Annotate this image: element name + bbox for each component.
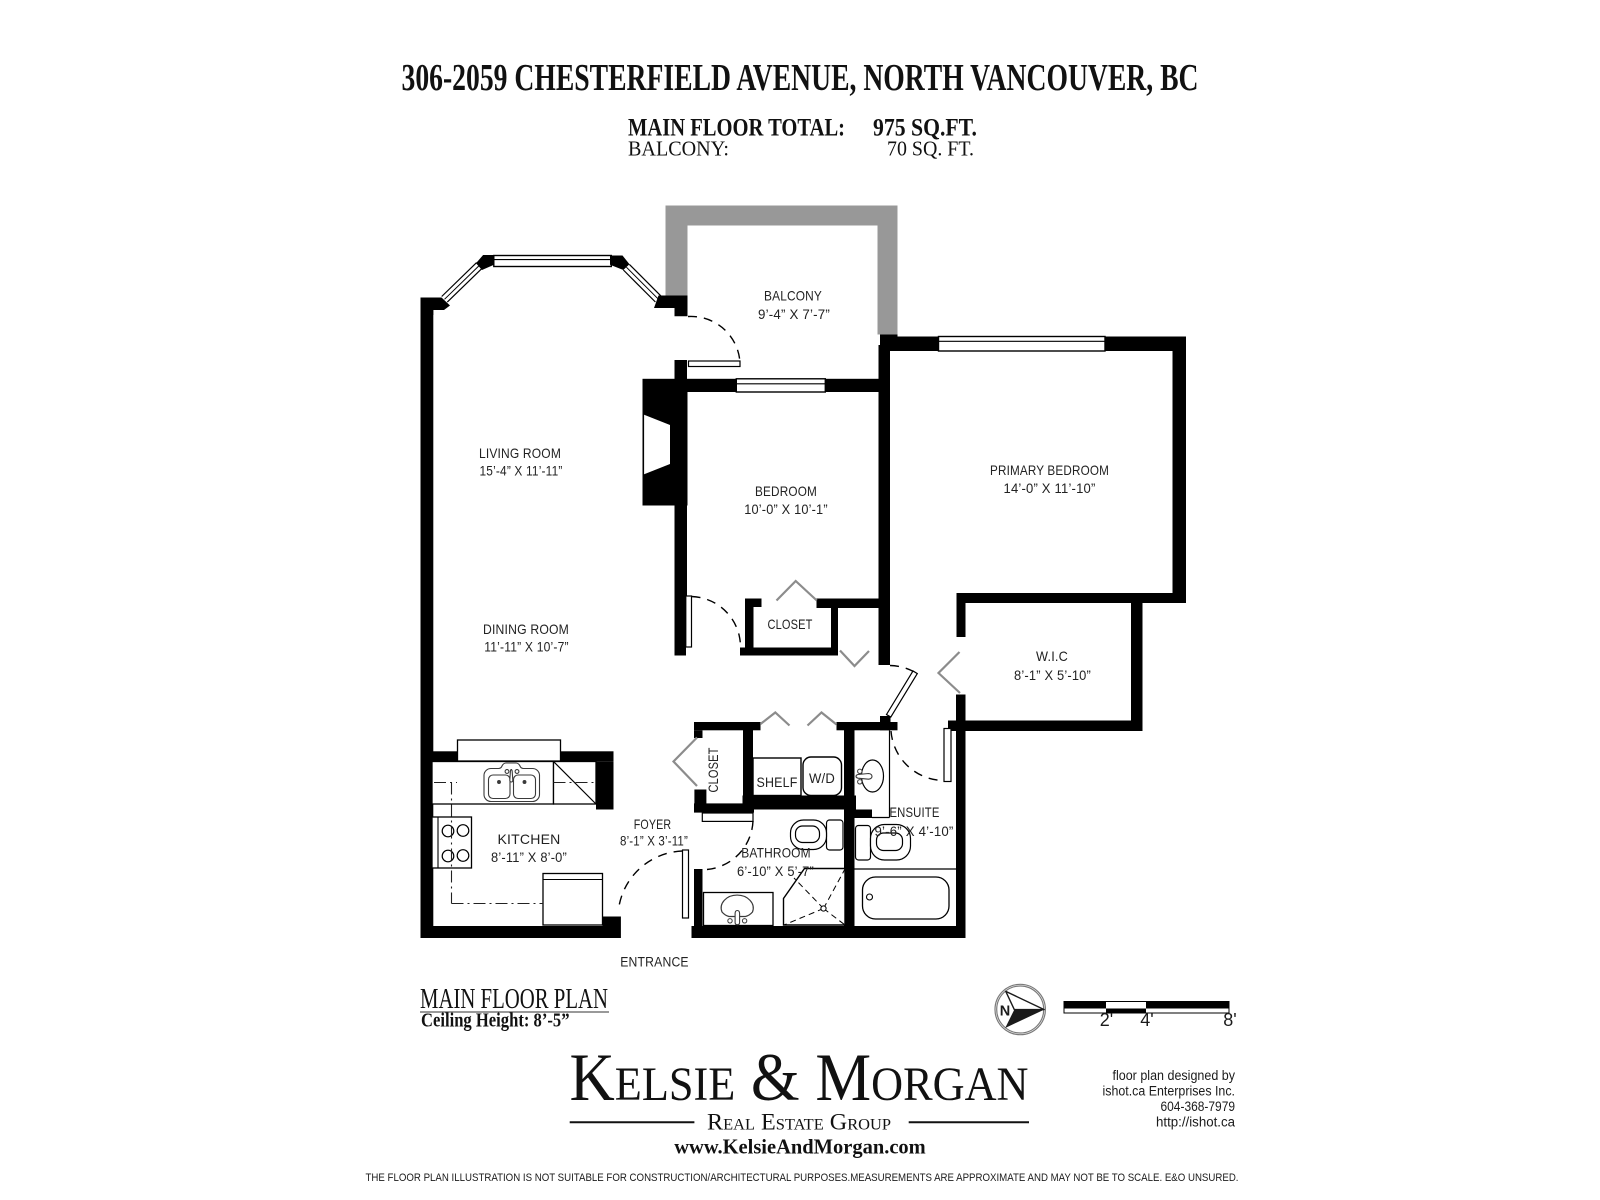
svg-text:floor plan designed by: floor plan designed by xyxy=(1113,1068,1236,1083)
svg-text:SHELF: SHELF xyxy=(757,774,798,790)
svg-text:DINING ROOM: DINING ROOM xyxy=(483,621,569,637)
svg-text:http://ishot.ca: http://ishot.ca xyxy=(1156,1115,1235,1130)
svg-text:6’-10” X 5’-7”: 6’-10” X 5’-7” xyxy=(737,863,814,879)
svg-text:306-2059 CHESTERFIELD AVENUE,: 306-2059 CHESTERFIELD AVENUE, NORTH VANC… xyxy=(402,57,1199,99)
svg-text:CLOSET: CLOSET xyxy=(768,616,813,632)
svg-text:W.I.C: W.I.C xyxy=(1036,648,1068,664)
svg-text:Ceiling Height: 8’-5”: Ceiling Height: 8’-5” xyxy=(421,1010,570,1032)
svg-text:LIVING ROOM: LIVING ROOM xyxy=(479,445,561,461)
svg-text:ENSUITE: ENSUITE xyxy=(890,804,940,820)
svg-text:2': 2' xyxy=(1100,1010,1113,1030)
svg-text:BALCONY:: BALCONY: xyxy=(628,137,729,161)
svg-text:Kelsie & Morgan: Kelsie & Morgan xyxy=(570,1039,1029,1115)
svg-text:14’-0” X 11’-10”: 14’-0” X 11’-10” xyxy=(1004,480,1096,496)
svg-text:ENTRANCE: ENTRANCE xyxy=(620,954,689,970)
svg-text:BEDROOM: BEDROOM xyxy=(755,483,817,499)
svg-text:8': 8' xyxy=(1223,1010,1236,1030)
svg-text:N: N xyxy=(1000,1004,1010,1020)
svg-text:70 SQ. FT.: 70 SQ. FT. xyxy=(887,137,974,161)
svg-text:10’-0” X 10’-1”: 10’-0” X 10’-1” xyxy=(744,501,828,517)
svg-text:Real Estate Group: Real Estate Group xyxy=(707,1110,891,1136)
svg-text:KITCHEN: KITCHEN xyxy=(498,831,561,847)
svg-text:8’-11” X 8’-0”: 8’-11” X 8’-0” xyxy=(491,849,567,865)
svg-text:THE FLOOR PLAN ILLUSTRATION IS: THE FLOOR PLAN ILLUSTRATION IS NOT SUITA… xyxy=(366,1172,1239,1184)
svg-text:604-368-7979: 604-368-7979 xyxy=(1161,1099,1236,1114)
svg-text:BALCONY: BALCONY xyxy=(764,288,822,304)
svg-text:15’-4” X 11’-11”: 15’-4” X 11’-11” xyxy=(480,463,563,479)
svg-text:W/D: W/D xyxy=(809,770,835,786)
svg-text:9’-4” X 7’-7”: 9’-4” X 7’-7” xyxy=(758,306,830,322)
svg-text:8’-1” X 3’-11”: 8’-1” X 3’-11” xyxy=(620,833,688,849)
svg-text:BATHROOM: BATHROOM xyxy=(741,845,811,861)
svg-text:www.KelsieAndMorgan.com: www.KelsieAndMorgan.com xyxy=(674,1135,926,1159)
svg-text:CLOSET: CLOSET xyxy=(705,747,721,792)
svg-text:8’-1” X 5’-10”: 8’-1” X 5’-10” xyxy=(1014,667,1091,683)
svg-text:ishot.ca Enterprises Inc.: ishot.ca Enterprises Inc. xyxy=(1103,1084,1236,1099)
svg-text:9’-6” X 4’-10”: 9’-6” X 4’-10” xyxy=(875,823,954,839)
svg-text:4': 4' xyxy=(1140,1010,1153,1030)
svg-text:PRIMARY BEDROOM: PRIMARY BEDROOM xyxy=(990,462,1109,478)
svg-text:FOYER: FOYER xyxy=(634,816,672,832)
svg-text:11’-11” X 10’-7”: 11’-11” X 10’-7” xyxy=(484,639,569,655)
